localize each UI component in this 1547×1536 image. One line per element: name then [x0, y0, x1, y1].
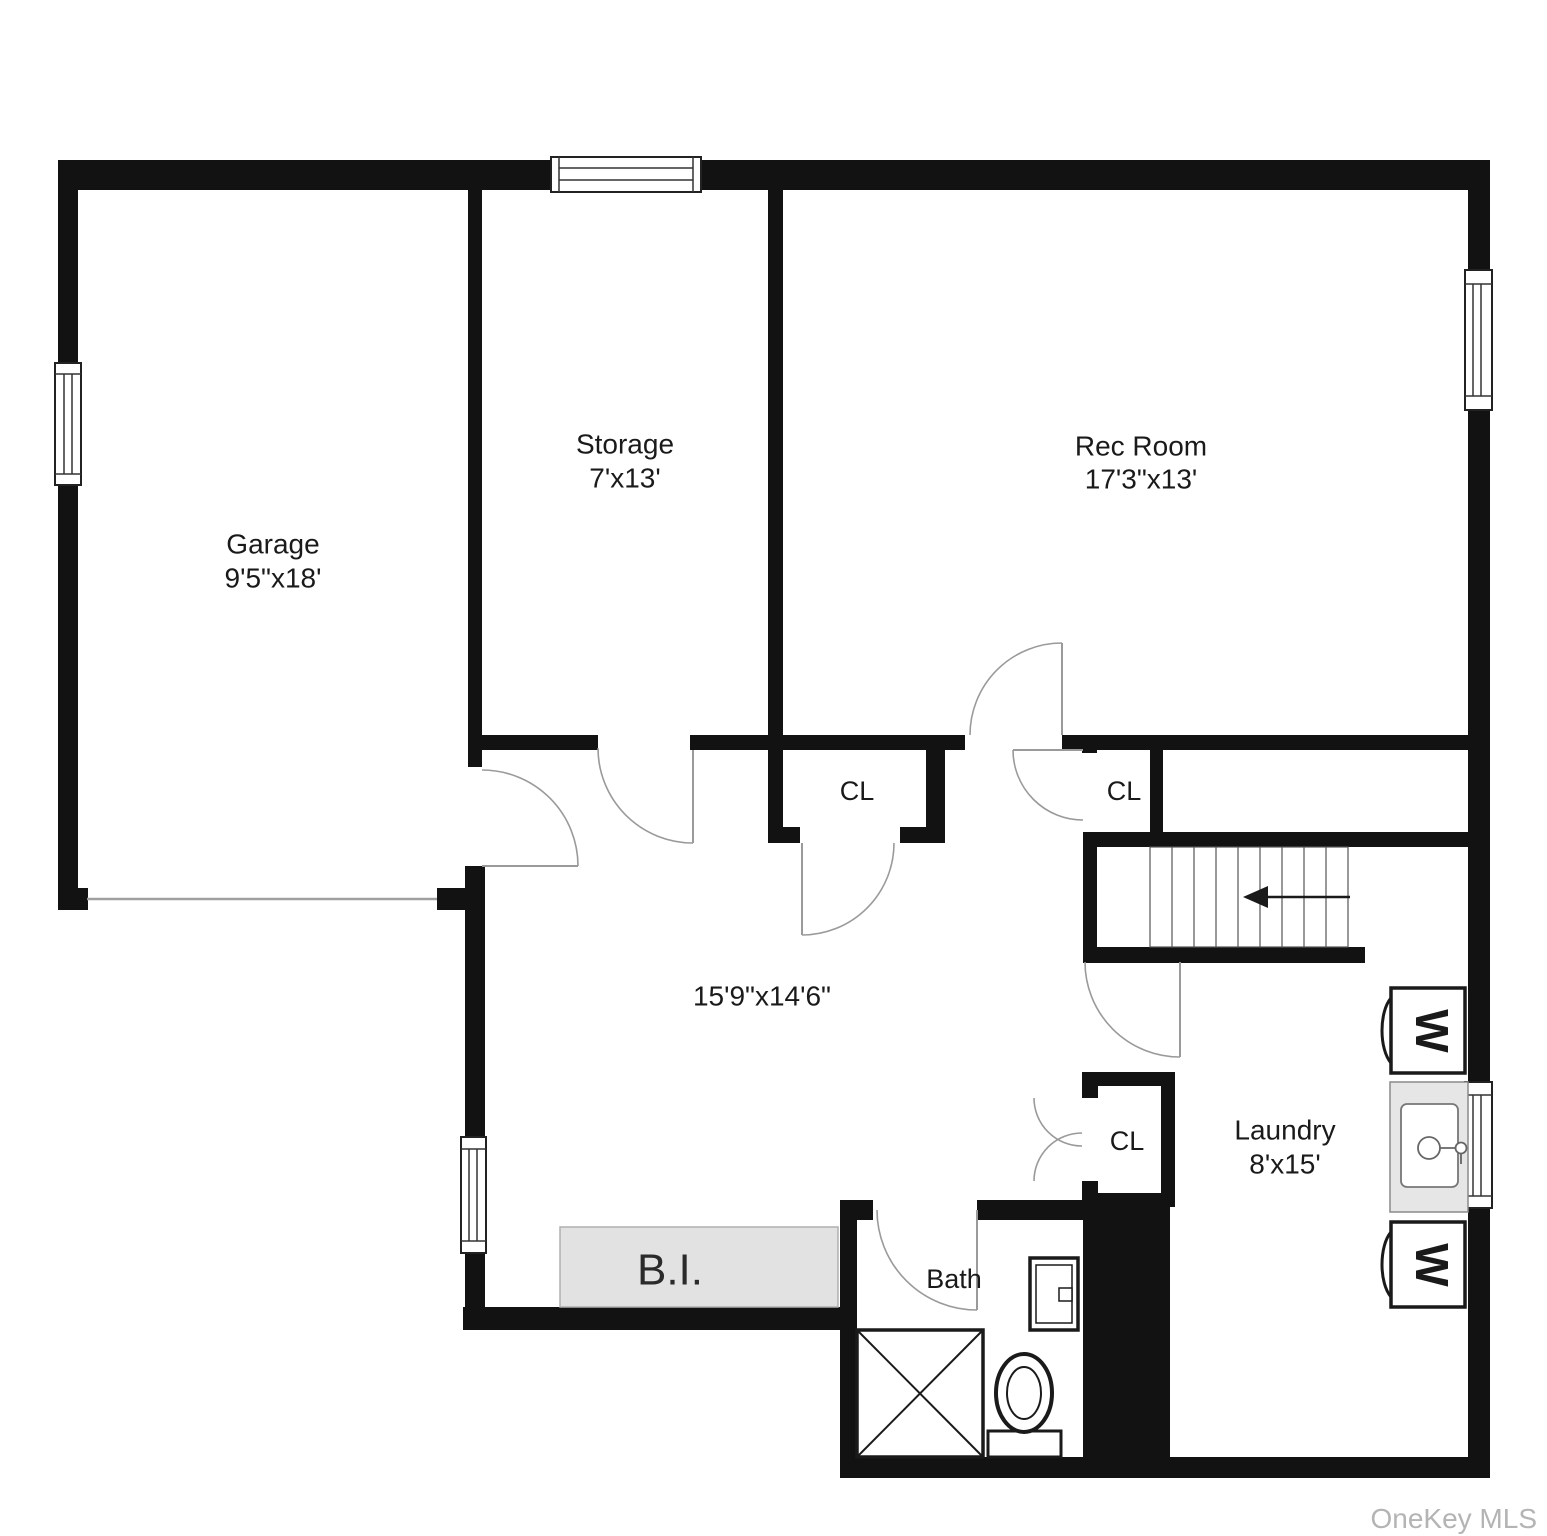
wall — [465, 1250, 485, 1330]
closet3-label: CL — [1110, 1126, 1145, 1156]
wall — [700, 160, 1490, 190]
floor-plan: W W Garage 9'5"x18' Storage 7'x13' Rec R… — [0, 0, 1547, 1536]
room-dims-center-room: 15'9"x14'6" — [693, 981, 831, 1012]
wall — [1468, 1206, 1490, 1478]
door-rec-room — [970, 643, 1062, 735]
room-dims-garage: 9'5"x18' — [225, 563, 322, 594]
washer-2: W — [1382, 1222, 1465, 1307]
watermark: OneKey MLS — [1370, 1503, 1537, 1534]
stairs — [1150, 847, 1350, 947]
wall — [482, 735, 598, 750]
wall — [1083, 947, 1365, 963]
window-rec-right — [1465, 270, 1492, 410]
room-label-bath: Bath — [926, 1264, 982, 1294]
wall — [58, 483, 78, 910]
door-closet2 — [1013, 750, 1083, 820]
window-laundry-right — [1465, 1082, 1492, 1208]
washer-1-label: W — [1406, 1009, 1458, 1053]
built-in-label: B.I. — [637, 1246, 703, 1295]
wall — [900, 827, 945, 843]
door-closet3-bifold — [1034, 1098, 1082, 1181]
wall — [1083, 832, 1468, 847]
wall — [58, 160, 553, 190]
wall — [1062, 735, 1468, 750]
wall — [1082, 1072, 1098, 1098]
room-label-rec-room: Rec Room — [1075, 431, 1207, 462]
room-dims-storage: 7'x13' — [589, 463, 660, 494]
wall — [768, 827, 800, 843]
closet1-label: CL — [840, 776, 875, 806]
door-closet1 — [802, 843, 894, 935]
wall — [437, 888, 468, 910]
wall — [468, 186, 482, 767]
wall — [1082, 743, 1097, 753]
bath-vanity-sink — [1030, 1258, 1078, 1330]
floor-plan-canvas: W W Garage 9'5"x18' Storage 7'x13' Rec R… — [0, 0, 1547, 1536]
washer-2-label: W — [1406, 1243, 1458, 1287]
wall — [1083, 832, 1097, 963]
wall — [840, 1200, 873, 1220]
toilet — [988, 1354, 1061, 1457]
shower — [857, 1330, 983, 1457]
door-storage-to-center — [598, 748, 693, 843]
door-bath — [877, 1210, 977, 1310]
room-label-storage: Storage — [576, 429, 674, 460]
room-dims-rec-room: 17'3"x13' — [1085, 464, 1198, 495]
fixtures: W W — [560, 988, 1468, 1457]
wall — [58, 888, 88, 910]
wall — [1150, 735, 1163, 843]
room-dims-laundry: 8'x15' — [1249, 1149, 1320, 1180]
stairs-direction-arrow — [1243, 886, 1350, 908]
wall — [58, 186, 78, 365]
room-label-garage: Garage — [226, 529, 319, 560]
wall — [977, 1200, 1083, 1220]
utility-sink — [1390, 1082, 1468, 1212]
wall — [1083, 1200, 1170, 1478]
window-center-left — [461, 1137, 486, 1253]
room-label-laundry: Laundry — [1234, 1115, 1335, 1146]
washer-1: W — [1382, 988, 1465, 1073]
wall — [463, 1307, 853, 1330]
wall — [768, 186, 783, 750]
closet2-label: CL — [1107, 776, 1142, 806]
window-storage-top — [551, 157, 701, 192]
wall — [1468, 160, 1490, 272]
wall — [1161, 1072, 1175, 1207]
door-laundry — [1085, 962, 1180, 1057]
door-garage-to-center — [482, 770, 578, 866]
wall — [840, 1205, 857, 1478]
wall — [1468, 408, 1490, 1084]
wall — [690, 735, 965, 750]
window-garage-left — [55, 363, 81, 485]
